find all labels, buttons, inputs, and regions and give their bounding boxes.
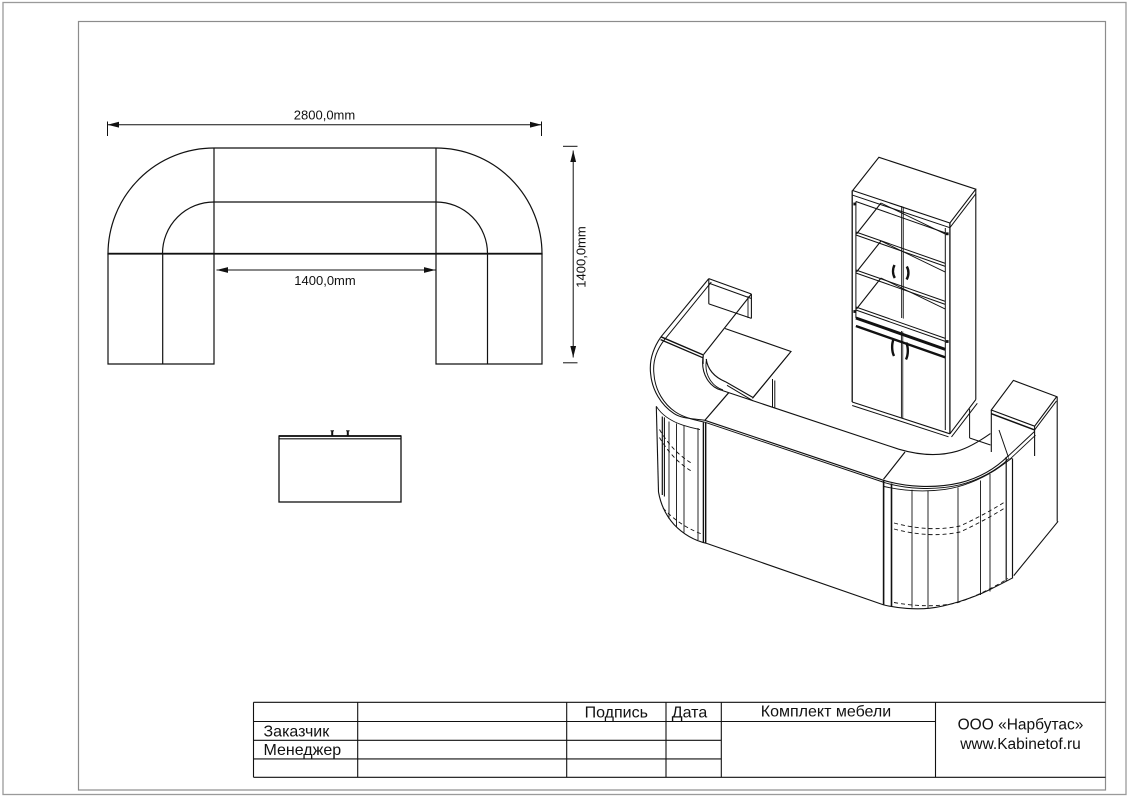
svg-text:1400,0mm: 1400,0mm (574, 226, 589, 287)
svg-text:1400,0mm: 1400,0mm (294, 273, 355, 288)
svg-text:Подпись: Подпись (585, 705, 648, 722)
svg-text:Заказчик: Заказчик (264, 724, 331, 741)
svg-text:ООО «Нарбутас»: ООО «Нарбутас» (958, 717, 1084, 734)
svg-text:www.Kabinetof.ru: www.Kabinetof.ru (959, 736, 1081, 753)
svg-text:Менеджер: Менеджер (264, 742, 342, 759)
svg-text:Дата: Дата (672, 705, 708, 722)
svg-text:Комплект мебели: Комплект мебели (761, 704, 891, 721)
svg-text:2800,0mm: 2800,0mm (294, 108, 355, 123)
